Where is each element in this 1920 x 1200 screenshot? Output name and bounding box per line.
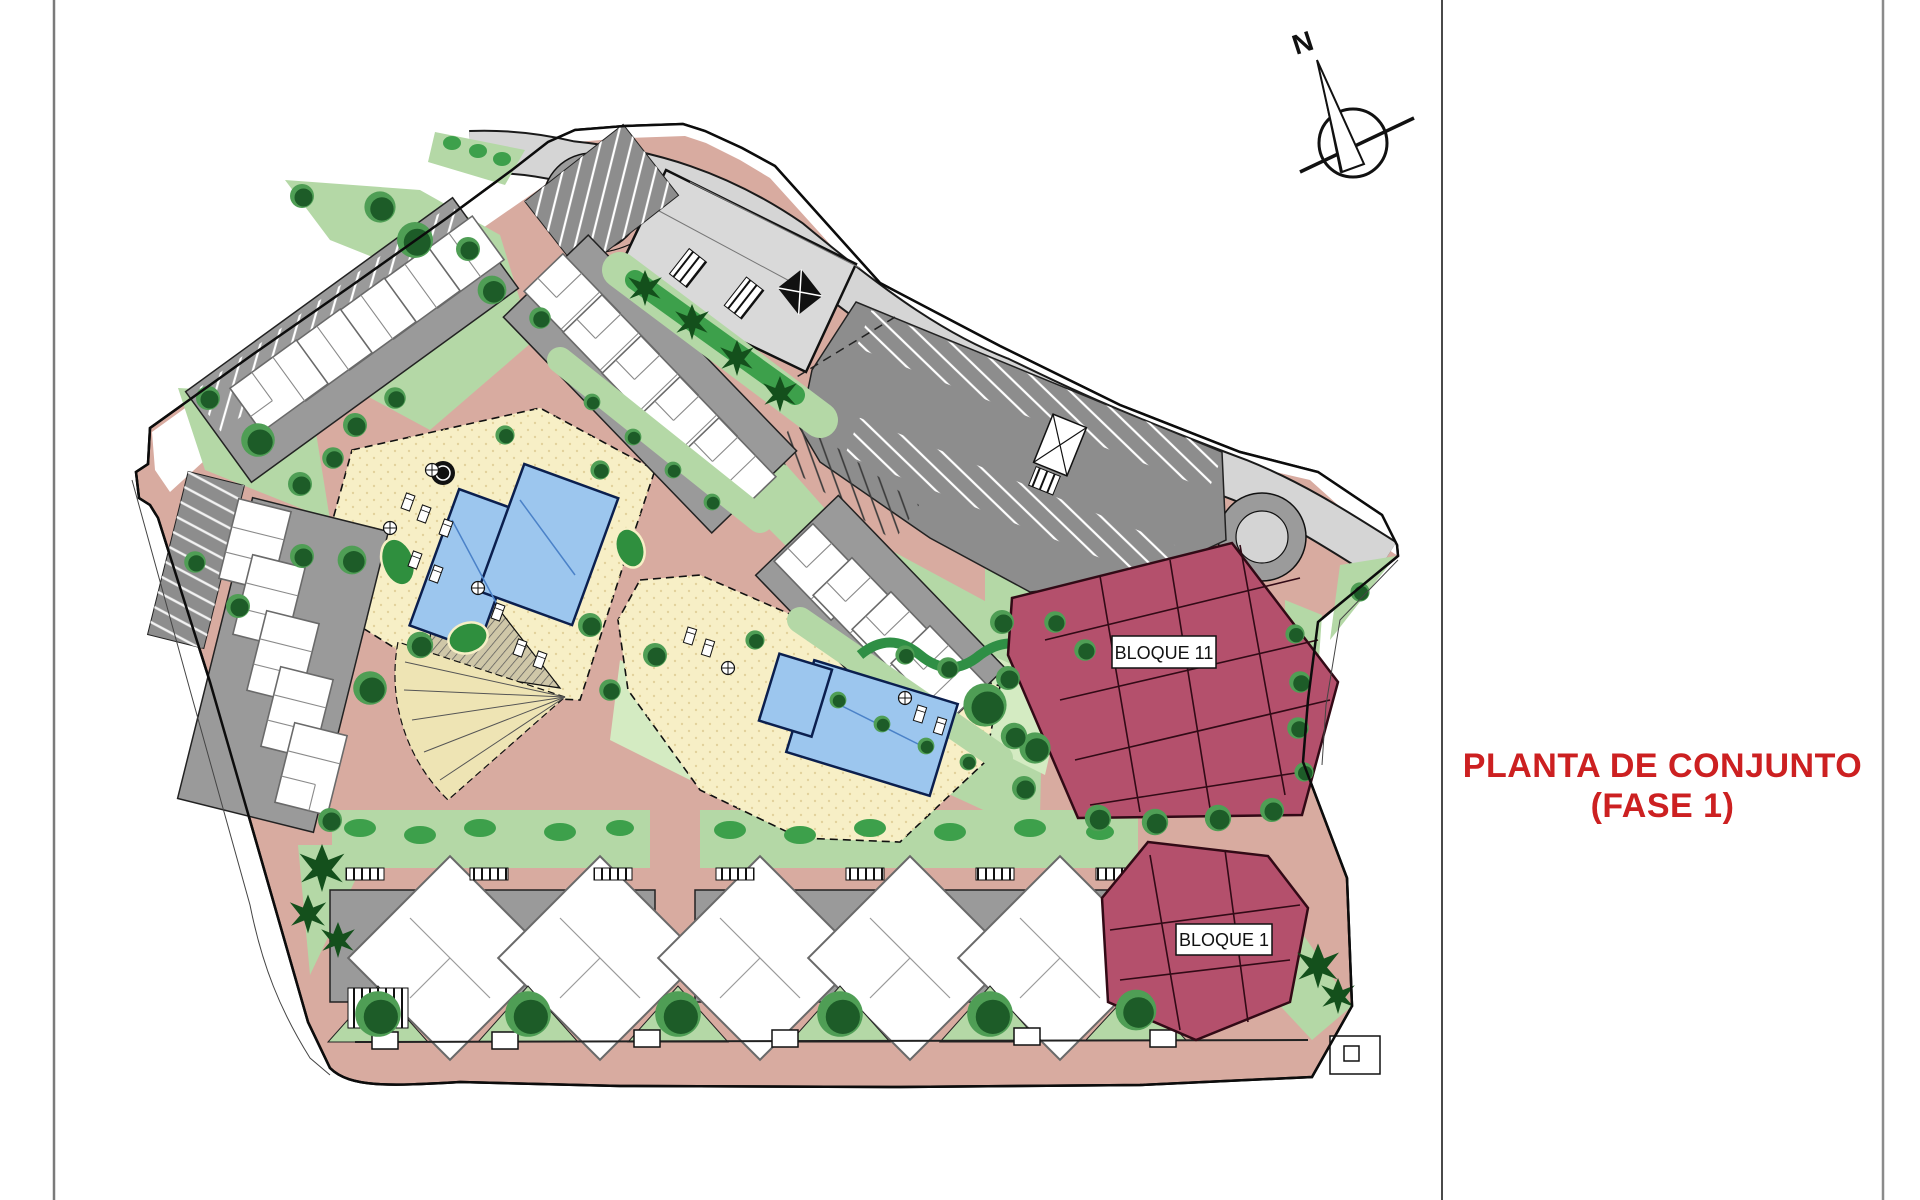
sheet: BLOQUE 11 BLOQUE 1 N PLANTA DE CONJUNTO … [0,0,1920,1200]
drawing-title: PLANTA DE CONJUNTO (FASE 1) [1442,746,1883,826]
drawing-title-line1: PLANTA DE CONJUNTO [1442,746,1883,786]
drawing-title-line2: (FASE 1) [1442,786,1883,826]
south-row-east [658,856,1162,1060]
bloque-11-label: BLOQUE 11 [1112,636,1216,668]
bloque-11-label-text: BLOQUE 11 [1115,643,1214,663]
bloque-1-label-text: BLOQUE 1 [1179,930,1269,950]
bloque-1-label: BLOQUE 1 [1176,924,1272,955]
site-plan-drawing: BLOQUE 11 BLOQUE 1 N [0,0,1920,1200]
compass-north-label: N [1288,25,1317,61]
utility-box [1330,1036,1380,1074]
north-compass-icon: N [1288,25,1414,177]
